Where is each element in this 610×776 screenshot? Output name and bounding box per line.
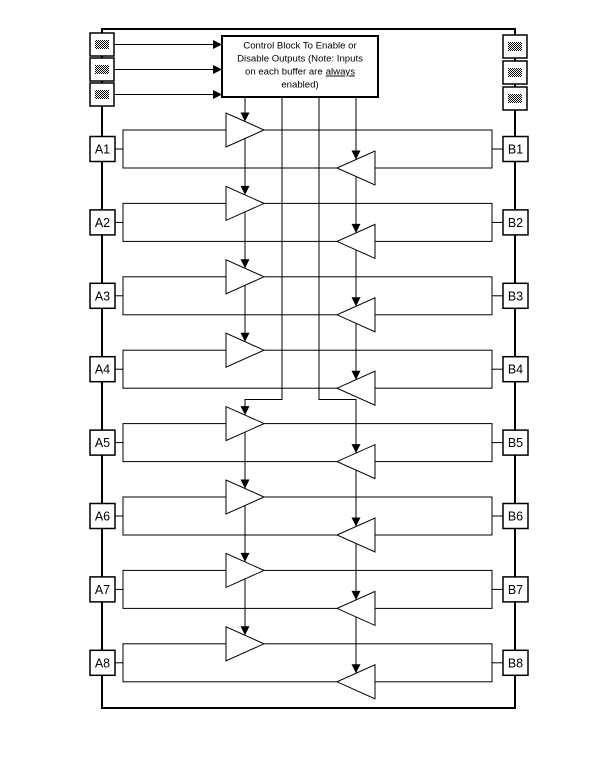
buffer-diagram-page: A1B1A2B2A3B3A4B4A5B5A6B6A7B7A8B8 Control… <box>0 0 610 776</box>
channel-rect-a6-b6 <box>123 497 492 535</box>
pin-a1-label: A1 <box>95 143 110 157</box>
channel-rect-a1-b1 <box>123 130 492 168</box>
pin-b2-label: B2 <box>508 216 523 230</box>
channel-rect-a2-b2 <box>123 203 492 241</box>
pin-a6-label: A6 <box>95 510 110 524</box>
channel-rect-a3-b3 <box>123 277 492 315</box>
pin-b3-label: B3 <box>508 289 523 303</box>
control-block-text-line4: enabled) <box>281 80 318 91</box>
channel-rect-a7-b7 <box>123 570 492 608</box>
arrow-right-icon <box>213 90 222 99</box>
hatched-pad-icon <box>508 94 522 103</box>
arrow-right-icon <box>213 40 222 49</box>
pin-b8-label: B8 <box>508 656 523 670</box>
hatched-pad-icon <box>95 90 109 99</box>
control-block-text-line2: Disable Outputs (Note: Inputs <box>237 54 363 65</box>
pin-a8-label: A8 <box>95 656 110 670</box>
channel-rect-a8-b8 <box>123 644 492 682</box>
hatched-pad-icon <box>95 40 109 49</box>
arrow-right-icon <box>213 65 222 74</box>
hatched-pad-icon <box>508 68 522 77</box>
control-block-text-line3-prefix: on each buffer are <box>245 67 323 78</box>
pin-b7-label: B7 <box>508 583 523 597</box>
control-block-text-line3-underlined: always <box>326 67 356 78</box>
control-block-text-line3: on each buffer arealways <box>245 67 355 78</box>
hatched-pad-icon <box>95 65 109 74</box>
pin-b1-label: B1 <box>508 143 523 157</box>
control-block-text-line1: Control Block To Enable or <box>243 41 357 52</box>
pin-a3-label: A3 <box>95 289 110 303</box>
pin-b4-label: B4 <box>508 363 523 377</box>
pin-b6-label: B6 <box>508 510 523 524</box>
channel-rect-a5-b5 <box>123 424 492 462</box>
pin-a4-label: A4 <box>95 363 110 377</box>
pin-a5-label: A5 <box>95 436 110 450</box>
pin-a2-label: A2 <box>95 216 110 230</box>
octal-buffer-diagram: A1B1A2B2A3B3A4B4A5B5A6B6A7B7A8B8 Control… <box>0 0 610 776</box>
channel-rect-a4-b4 <box>123 350 492 388</box>
control-block: Control Block To Enable or Disable Outpu… <box>222 36 378 97</box>
pin-b5-label: B5 <box>508 436 523 450</box>
pin-a7-label: A7 <box>95 583 110 597</box>
hatched-pad-icon <box>508 42 522 51</box>
